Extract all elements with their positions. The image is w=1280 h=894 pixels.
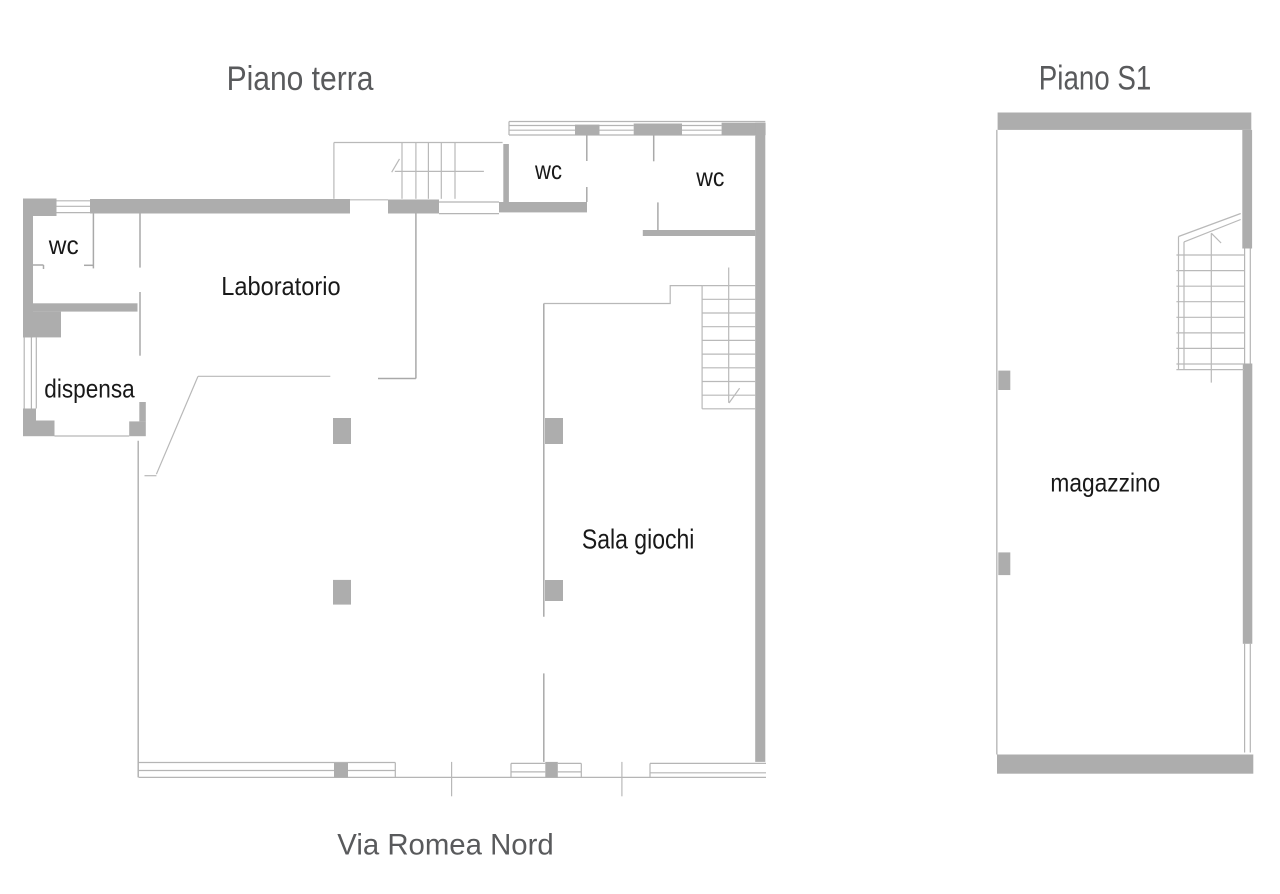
svg-text:Sala giochi: Sala giochi <box>582 524 695 555</box>
svg-text:magazzino: magazzino <box>1050 468 1160 498</box>
svg-text:Laboratorio: Laboratorio <box>221 271 340 301</box>
svg-text:wc: wc <box>48 230 79 260</box>
svg-text:dispensa: dispensa <box>44 373 135 403</box>
svg-text:Piano S1: Piano S1 <box>1039 60 1152 98</box>
svg-text:wc: wc <box>534 155 562 185</box>
svg-text:Via Romea Nord: Via Romea Nord <box>337 830 553 862</box>
svg-text:wc: wc <box>695 162 724 192</box>
svg-text:Piano terra: Piano terra <box>227 60 375 98</box>
